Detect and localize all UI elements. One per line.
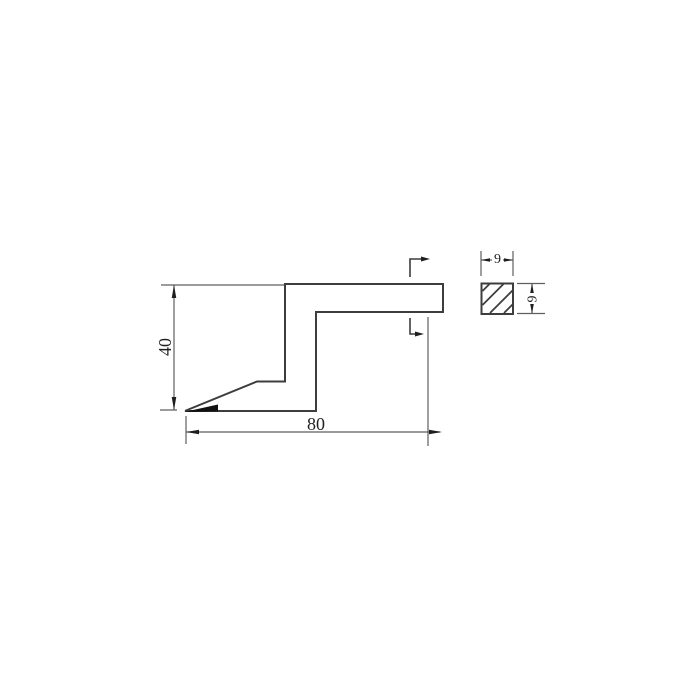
dim-section-width-arrow-left-icon bbox=[481, 258, 490, 262]
dimension-width: 80 bbox=[186, 317, 442, 446]
profile-outline bbox=[186, 284, 443, 411]
section-cut-marker-top-line bbox=[410, 259, 424, 277]
dim-section-height-arrow-up-icon bbox=[530, 284, 534, 294]
hatch-line bbox=[504, 305, 513, 314]
dim-height-label: 40 bbox=[155, 338, 175, 356]
section-cut-arrow-top-icon bbox=[421, 257, 430, 262]
dim-section-height-arrow-down-icon bbox=[530, 304, 534, 314]
dim-width-arrow-right-icon bbox=[429, 430, 442, 434]
cross-section-detail: 9 9 bbox=[481, 251, 545, 314]
dimension-section-width: 9 bbox=[481, 251, 513, 276]
dim-section-width-label: 9 bbox=[494, 252, 501, 267]
dim-section-height-label: 9 bbox=[526, 296, 541, 303]
profile-outline-path bbox=[186, 284, 443, 411]
section-cut-marker-top bbox=[410, 257, 430, 278]
hatch-lines bbox=[483, 284, 513, 313]
z-profile-drawing: 40 80 bbox=[0, 0, 700, 700]
hatch-line bbox=[483, 284, 490, 291]
dim-width-arrow-left-icon bbox=[186, 430, 199, 434]
dim-height-arrow-down-icon bbox=[172, 397, 177, 410]
section-cut-arrow-bottom-icon bbox=[415, 332, 424, 337]
dim-width-label: 80 bbox=[307, 414, 325, 434]
dim-height-arrow-up-icon bbox=[172, 285, 177, 298]
section-cut-marker-bottom bbox=[410, 318, 424, 337]
dimension-height: 40 bbox=[155, 285, 284, 410]
technical-drawing-canvas: 40 80 bbox=[0, 0, 700, 700]
dim-section-width-arrow-right-icon bbox=[504, 258, 513, 262]
dimension-section-height: 9 bbox=[517, 284, 545, 314]
